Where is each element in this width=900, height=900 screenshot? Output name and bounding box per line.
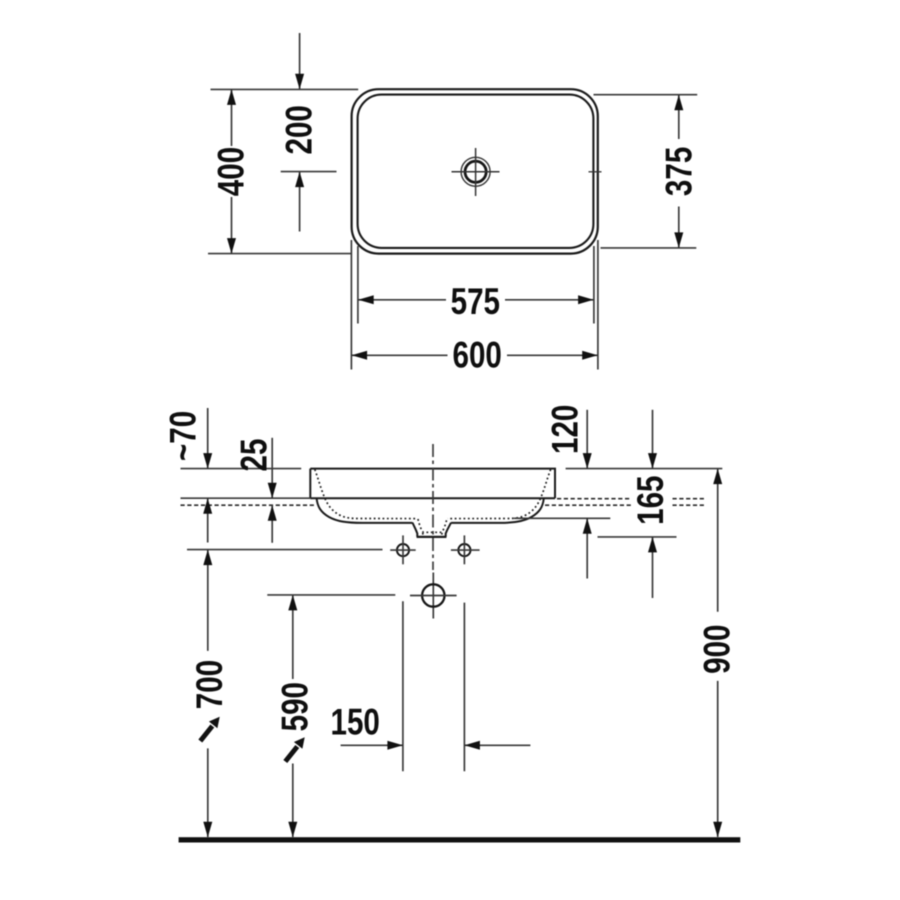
svg-text:600: 600	[453, 335, 502, 376]
svg-text:590: 590	[276, 682, 317, 731]
svg-text:200: 200	[280, 105, 321, 154]
svg-text:375: 375	[660, 147, 701, 196]
svg-text:900: 900	[697, 625, 738, 674]
svg-text:120: 120	[545, 405, 586, 454]
svg-text:575: 575	[451, 282, 500, 323]
svg-text:400: 400	[211, 147, 252, 196]
svg-text:25: 25	[234, 439, 275, 472]
svg-text:~70: ~70	[163, 411, 204, 461]
svg-text:165: 165	[631, 476, 672, 525]
svg-text:700: 700	[190, 660, 231, 709]
svg-text:150: 150	[331, 702, 380, 743]
